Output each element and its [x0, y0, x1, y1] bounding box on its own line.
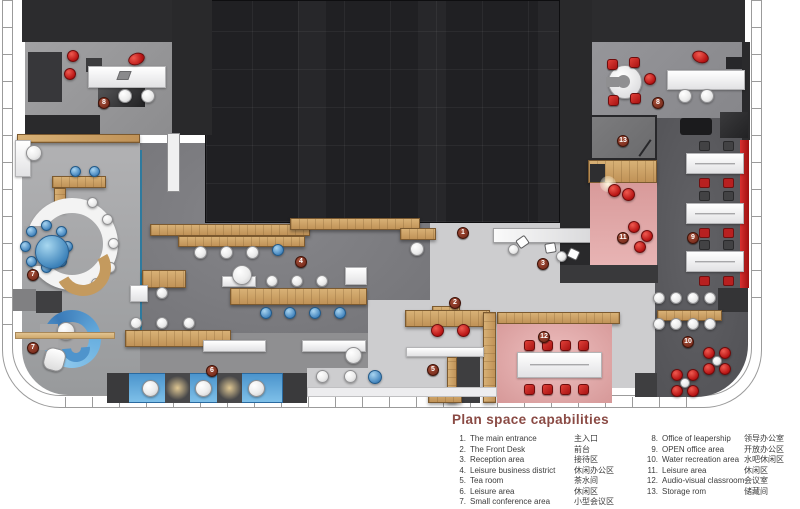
desk-line: [695, 261, 735, 263]
white-stool: [220, 246, 233, 259]
wall-below-leisure-11: [560, 265, 658, 283]
marker-11: 11: [617, 232, 629, 244]
white-table-round: [232, 265, 252, 285]
red-chair: [719, 363, 731, 375]
blue-chair: [20, 241, 31, 252]
marker-13: 13: [617, 135, 629, 147]
round-table: [248, 380, 265, 397]
table-line: [530, 364, 590, 366]
marker-8b: 8: [652, 97, 664, 109]
dark-cabinet: [635, 373, 657, 397]
legend-num: 4.: [452, 466, 466, 477]
office-desk: [686, 251, 744, 272]
white-stool: [653, 292, 665, 304]
white-stool: [700, 89, 714, 103]
legend-en: Audio-visual classroom: [662, 476, 744, 487]
red-chair: [560, 340, 571, 351]
white-stool: [156, 317, 168, 329]
red-chair: [431, 324, 444, 337]
legend-num: 13.: [644, 487, 658, 498]
legend-num: 12.: [644, 476, 658, 487]
legend-right-column: 8.Office of leapership领导办公室 9.OPEN offic…: [644, 434, 784, 497]
door-left-of-core: [167, 133, 180, 192]
room12-top-wall: [497, 312, 620, 324]
legend-item: 4.Leisure business district休闲办公区: [452, 466, 614, 477]
white-stool: [194, 246, 207, 259]
red-chair: [560, 384, 571, 395]
white-stool: [141, 89, 155, 103]
table-notch-open: [606, 77, 619, 87]
legend-num: 9.: [644, 445, 658, 456]
office-desk: [686, 203, 744, 224]
red-chair: [578, 384, 589, 395]
marker-4: 4: [295, 256, 307, 268]
legend-item: 11.Leisure area休闲区: [644, 466, 784, 477]
legend-zh: 主入口: [574, 434, 598, 445]
wardrobe-office-left: [28, 52, 62, 102]
legend-zh: 接待区: [574, 455, 598, 466]
round-table: [142, 380, 159, 397]
blue-stool: [70, 166, 81, 177]
legend-num: 5.: [452, 476, 466, 487]
desk-line: [695, 213, 735, 215]
legend-num: 6.: [452, 487, 466, 498]
credenza: [680, 118, 712, 135]
building-core: [205, 0, 560, 223]
dark-cabinet: [718, 288, 748, 312]
blue-stool: [89, 166, 100, 177]
marker-10: 10: [682, 336, 694, 348]
front-desk-counter: [405, 310, 490, 327]
legend-zh: 储藏间: [744, 487, 768, 498]
office-chair: [699, 240, 710, 250]
office-chair: [699, 191, 710, 201]
legend-en: Tea room: [470, 476, 574, 487]
office-chair: [699, 141, 710, 151]
white-panel: [345, 267, 367, 285]
red-chair: [67, 50, 79, 62]
white-desk: [667, 70, 745, 90]
blue-stool: [334, 307, 346, 319]
legend-item: 10.Water recreation area水吧休闲区: [644, 455, 784, 466]
white-stool: [156, 287, 168, 299]
legend-zh: 休闲办公区: [574, 466, 614, 477]
office-chair: [723, 191, 734, 201]
marker-1: 1: [457, 227, 469, 239]
legend-zh: 休闲区: [744, 466, 768, 477]
legend-en: Leisure area: [662, 466, 744, 477]
red-chair: [634, 241, 646, 253]
white-stool: [704, 292, 716, 304]
legend-zh: 小型会议区: [574, 497, 614, 508]
office-chair-red: [699, 228, 710, 238]
legend-zh: 休闲区: [574, 487, 598, 498]
white-stool: [316, 275, 328, 287]
red-chair: [457, 324, 470, 337]
marker-9: 9: [687, 232, 699, 244]
legend-title: Plan space capabilities: [452, 412, 609, 427]
legend-item: 7.Small conference area小型会议区: [452, 497, 614, 508]
long-bench: [307, 387, 497, 397]
red-chair: [629, 57, 640, 68]
office-chair: [723, 240, 734, 250]
legend-item: 1.The main entrance主入口: [452, 434, 614, 445]
white-stool: [508, 244, 519, 255]
white-stool: [704, 318, 716, 330]
dark-side-table: [726, 57, 742, 69]
marker-5: 5: [427, 364, 439, 376]
desk-line: [695, 163, 735, 165]
red-chair: [64, 68, 76, 80]
gray-cabinet: [13, 289, 36, 311]
office-chair-red: [723, 228, 734, 238]
wood-table-short: [400, 228, 436, 240]
white-stool: [183, 317, 195, 329]
booth-table: [217, 373, 242, 403]
legend-en: Reception area: [470, 455, 574, 466]
legend-zh: 前台: [574, 445, 590, 456]
office-chair-red: [723, 276, 734, 286]
wood-strip-left: [17, 134, 140, 143]
red-chair: [524, 384, 535, 395]
white-stool: [130, 317, 142, 329]
white-stool: [266, 275, 278, 287]
wall-right-of-core: [560, 0, 592, 265]
blue-stool: [272, 244, 284, 256]
marker-6: 6: [206, 365, 218, 377]
wall-office-left-bottom: [25, 115, 100, 135]
legend-en: OPEN office area: [662, 445, 744, 456]
white-stool: [87, 197, 98, 208]
wood-table-long: [230, 288, 367, 305]
white-stool: [108, 238, 119, 249]
blue-chair: [368, 370, 382, 384]
red-chair: [687, 385, 699, 397]
entrance-mat: [493, 228, 597, 243]
legend-item: 5.Tea room茶水间: [452, 476, 614, 487]
legend-en: The Front Desk: [470, 445, 574, 456]
legend-item: 13.Storage rom储藏间: [644, 487, 784, 498]
legend-zh: 开放办公区: [744, 445, 784, 456]
white-stool: [291, 275, 303, 287]
reception-chair: [544, 242, 557, 254]
legend-num: 11.: [644, 466, 658, 477]
legend-num: 1.: [452, 434, 466, 445]
tea-table: [406, 347, 484, 357]
legend-zh: 会议室: [744, 476, 768, 487]
red-chair: [622, 188, 635, 201]
legend-item: 9.OPEN office area开放办公区: [644, 445, 784, 456]
legend-en: Leisure area: [470, 487, 574, 498]
blue-stool: [284, 307, 296, 319]
marker-12: 12: [538, 331, 550, 343]
blue-stool: [260, 307, 272, 319]
floor-plan-page: 1 2 3 4 5 6 7 7 8 8 9 10 11 12 13 Plan s…: [0, 0, 800, 509]
red-chair: [630, 93, 641, 104]
marker-2: 2: [449, 297, 461, 309]
legend-num: 3.: [452, 455, 466, 466]
wood-bar-left: [52, 176, 106, 188]
legend-en: Small conference area: [470, 497, 574, 508]
legend-item: 12.Audio-visual classroom会议室: [644, 476, 784, 487]
red-chair: [524, 340, 535, 351]
conference-table: [517, 352, 602, 378]
marker-3: 3: [537, 258, 549, 270]
legend-num: 8.: [644, 434, 658, 445]
marker-8: 8: [98, 97, 110, 109]
white-shelf: [203, 340, 266, 352]
blue-round-table: [35, 235, 69, 269]
round-table: [712, 356, 722, 366]
legend-en: Storage rom: [662, 487, 744, 498]
round-table-small: [26, 145, 42, 161]
office-chair-red: [723, 178, 734, 188]
blue-chair: [26, 226, 37, 237]
red-chair: [607, 59, 618, 70]
white-stool: [102, 214, 113, 225]
legend-left-column: 1.The main entrance主入口 2.The Front Desk前…: [452, 434, 614, 508]
white-stool: [653, 318, 665, 330]
office-chair-red: [699, 276, 710, 286]
white-stool: [670, 292, 682, 304]
marker-7: 7: [27, 269, 39, 281]
white-stool: [678, 89, 692, 103]
white-stool: [118, 89, 132, 103]
white-stool: [410, 242, 424, 256]
white-stool: [316, 370, 329, 383]
legend-num: 7.: [452, 497, 466, 508]
white-table-round: [345, 347, 362, 364]
office-chair-red: [699, 178, 710, 188]
legend-num: 2.: [452, 445, 466, 456]
white-stool: [670, 318, 682, 330]
dark-cabinet: [36, 291, 62, 313]
red-chair: [628, 221, 640, 233]
red-chair: [641, 230, 653, 242]
legend-zh: 领导办公室: [744, 434, 784, 445]
dark-bench-end: [283, 373, 307, 403]
legend-en: Office of leapership: [662, 434, 744, 445]
wood-table-long: [178, 236, 305, 247]
wood-table-long: [150, 224, 310, 236]
legend-num: 10.: [644, 455, 658, 466]
red-chair: [578, 340, 589, 351]
white-stool: [556, 251, 567, 262]
wall-left-of-core: [172, 0, 212, 135]
legend-zh: 水吧休闲区: [744, 455, 784, 466]
office-desk: [686, 153, 744, 174]
legend-item: 3.Reception area接待区: [452, 455, 614, 466]
blue-chair: [41, 220, 52, 231]
white-stool: [246, 246, 259, 259]
white-panel: [130, 285, 148, 302]
dark-bench-end: [107, 373, 129, 403]
wood-ledge: [15, 332, 115, 339]
white-stool: [344, 370, 357, 383]
ruler-ticks-left: [3, 0, 12, 330]
legend-en: Water recreation area: [662, 455, 744, 466]
white-stool: [687, 292, 699, 304]
wood-desk: [142, 270, 186, 288]
ruler-ticks-right: [752, 0, 761, 320]
marker-7b: 7: [27, 342, 39, 354]
legend-en: The main entrance: [470, 434, 574, 445]
round-table: [195, 380, 212, 397]
legend-zh: 茶水间: [574, 476, 598, 487]
office-chair: [723, 141, 734, 151]
credenza: [720, 112, 748, 138]
legend-item: 8.Office of leapership领导办公室: [644, 434, 784, 445]
glass-partition-line: [140, 150, 142, 333]
round-table: [680, 378, 690, 388]
white-stool: [687, 318, 699, 330]
legend-item: 6.Leisure area休闲区: [452, 487, 614, 498]
red-chair: [644, 73, 656, 85]
blue-stool: [309, 307, 321, 319]
red-chair: [542, 384, 553, 395]
red-chair: [608, 95, 619, 106]
legend-en: Leisure business district: [470, 466, 574, 477]
red-chair: [608, 184, 621, 197]
booth-table: [165, 373, 190, 403]
legend-item: 2.The Front Desk前台: [452, 445, 614, 456]
